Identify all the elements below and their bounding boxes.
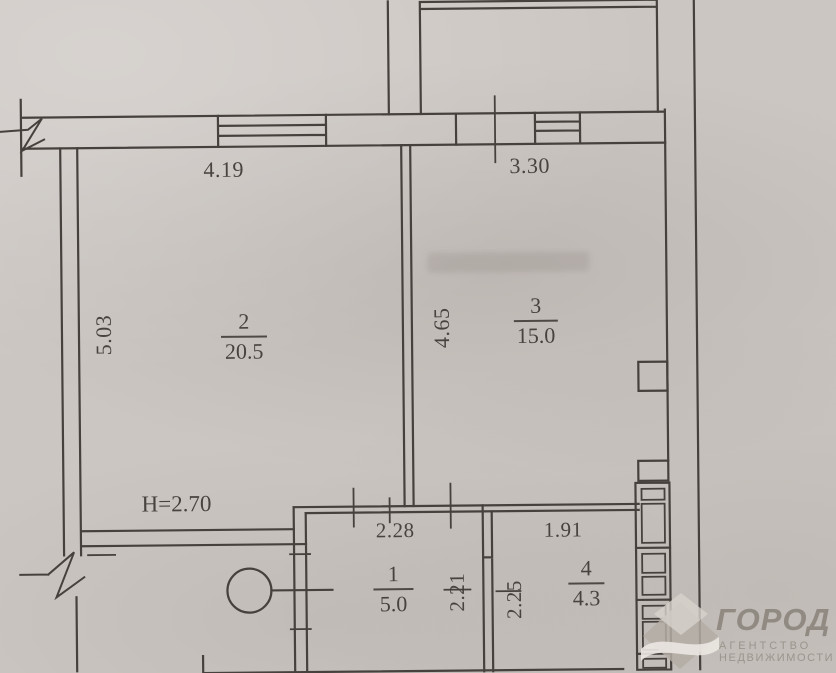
- wall-left-outer-stub: [21, 100, 22, 176]
- wall-top-outer-line: [23, 112, 665, 118]
- room-2-area: 20.5: [216, 340, 272, 363]
- dim-tick-330: [495, 96, 496, 162]
- room-1-fraction-bar: [373, 588, 413, 590]
- window-room2: [218, 115, 326, 147]
- ceiling-height-note: H=2.70: [141, 491, 211, 518]
- faint-smudge: [427, 251, 589, 273]
- room-3-number: 3: [508, 295, 564, 318]
- fixture-circle: [227, 568, 271, 612]
- dim-room2-width: 4.19: [203, 157, 244, 183]
- room-3-area: 15.0: [508, 325, 564, 348]
- wall-room3-right: [665, 110, 668, 461]
- room-4-label: 4 4.3: [558, 557, 614, 610]
- room-1-label: 1 5.0: [365, 563, 421, 616]
- wall-left-lower-stub: [76, 597, 77, 671]
- wall-room1-room4: [483, 505, 494, 672]
- room-4-fraction-bar: [568, 582, 604, 584]
- window-room3: [535, 112, 580, 143]
- room-4-area: 4.3: [558, 587, 614, 610]
- wall-notch-lower: [638, 461, 668, 481]
- door-leaf-line: [271, 590, 332, 591]
- scanned-floor-plan-page: 4.19 3.30 5.03 4.65 2.28 1.91 2.21 2.25 …: [0, 0, 836, 673]
- dim-room3-height: 4.65: [429, 296, 456, 360]
- wall-left-double: [60, 148, 81, 555]
- room-3-fraction-bar: [514, 320, 558, 322]
- dim-room4-height: 2.25: [502, 569, 528, 629]
- floor-plan: 4.19 3.30 5.03 4.65 2.28 1.91 2.21 2.25 …: [0, 0, 836, 673]
- loggia-outline: [420, 0, 658, 114]
- wall-notch-upper: [638, 362, 667, 391]
- dim-room4-width: 1.91: [544, 517, 583, 542]
- room-1-number: 1: [365, 563, 421, 586]
- wall-bottom-edge: [203, 652, 623, 673]
- room-3-label: 3 15.0: [508, 295, 564, 348]
- dim-room1-width: 2.28: [376, 518, 415, 543]
- wall-upper-neighbor: [388, 0, 389, 114]
- wall-room2-room3: [401, 145, 413, 506]
- room-4-number: 4: [558, 557, 614, 580]
- room-1-area: 5.0: [365, 593, 421, 616]
- dim-room3-width: 3.30: [509, 153, 550, 179]
- dim-room2-height: 5.03: [91, 303, 118, 367]
- wall-top-inner-line: [23, 143, 665, 149]
- room-2-number: 2: [216, 310, 272, 333]
- dim-room1-height: 2.21: [445, 562, 471, 622]
- wall-hall-top: [294, 504, 639, 513]
- vent-shaft-ducts: [641, 489, 666, 668]
- wall-room2-bottom: [82, 529, 306, 546]
- wall-right-outer: [694, 0, 700, 670]
- wall-break-bottom-left: [20, 552, 84, 598]
- room-2-label: 2 20.5: [216, 310, 272, 363]
